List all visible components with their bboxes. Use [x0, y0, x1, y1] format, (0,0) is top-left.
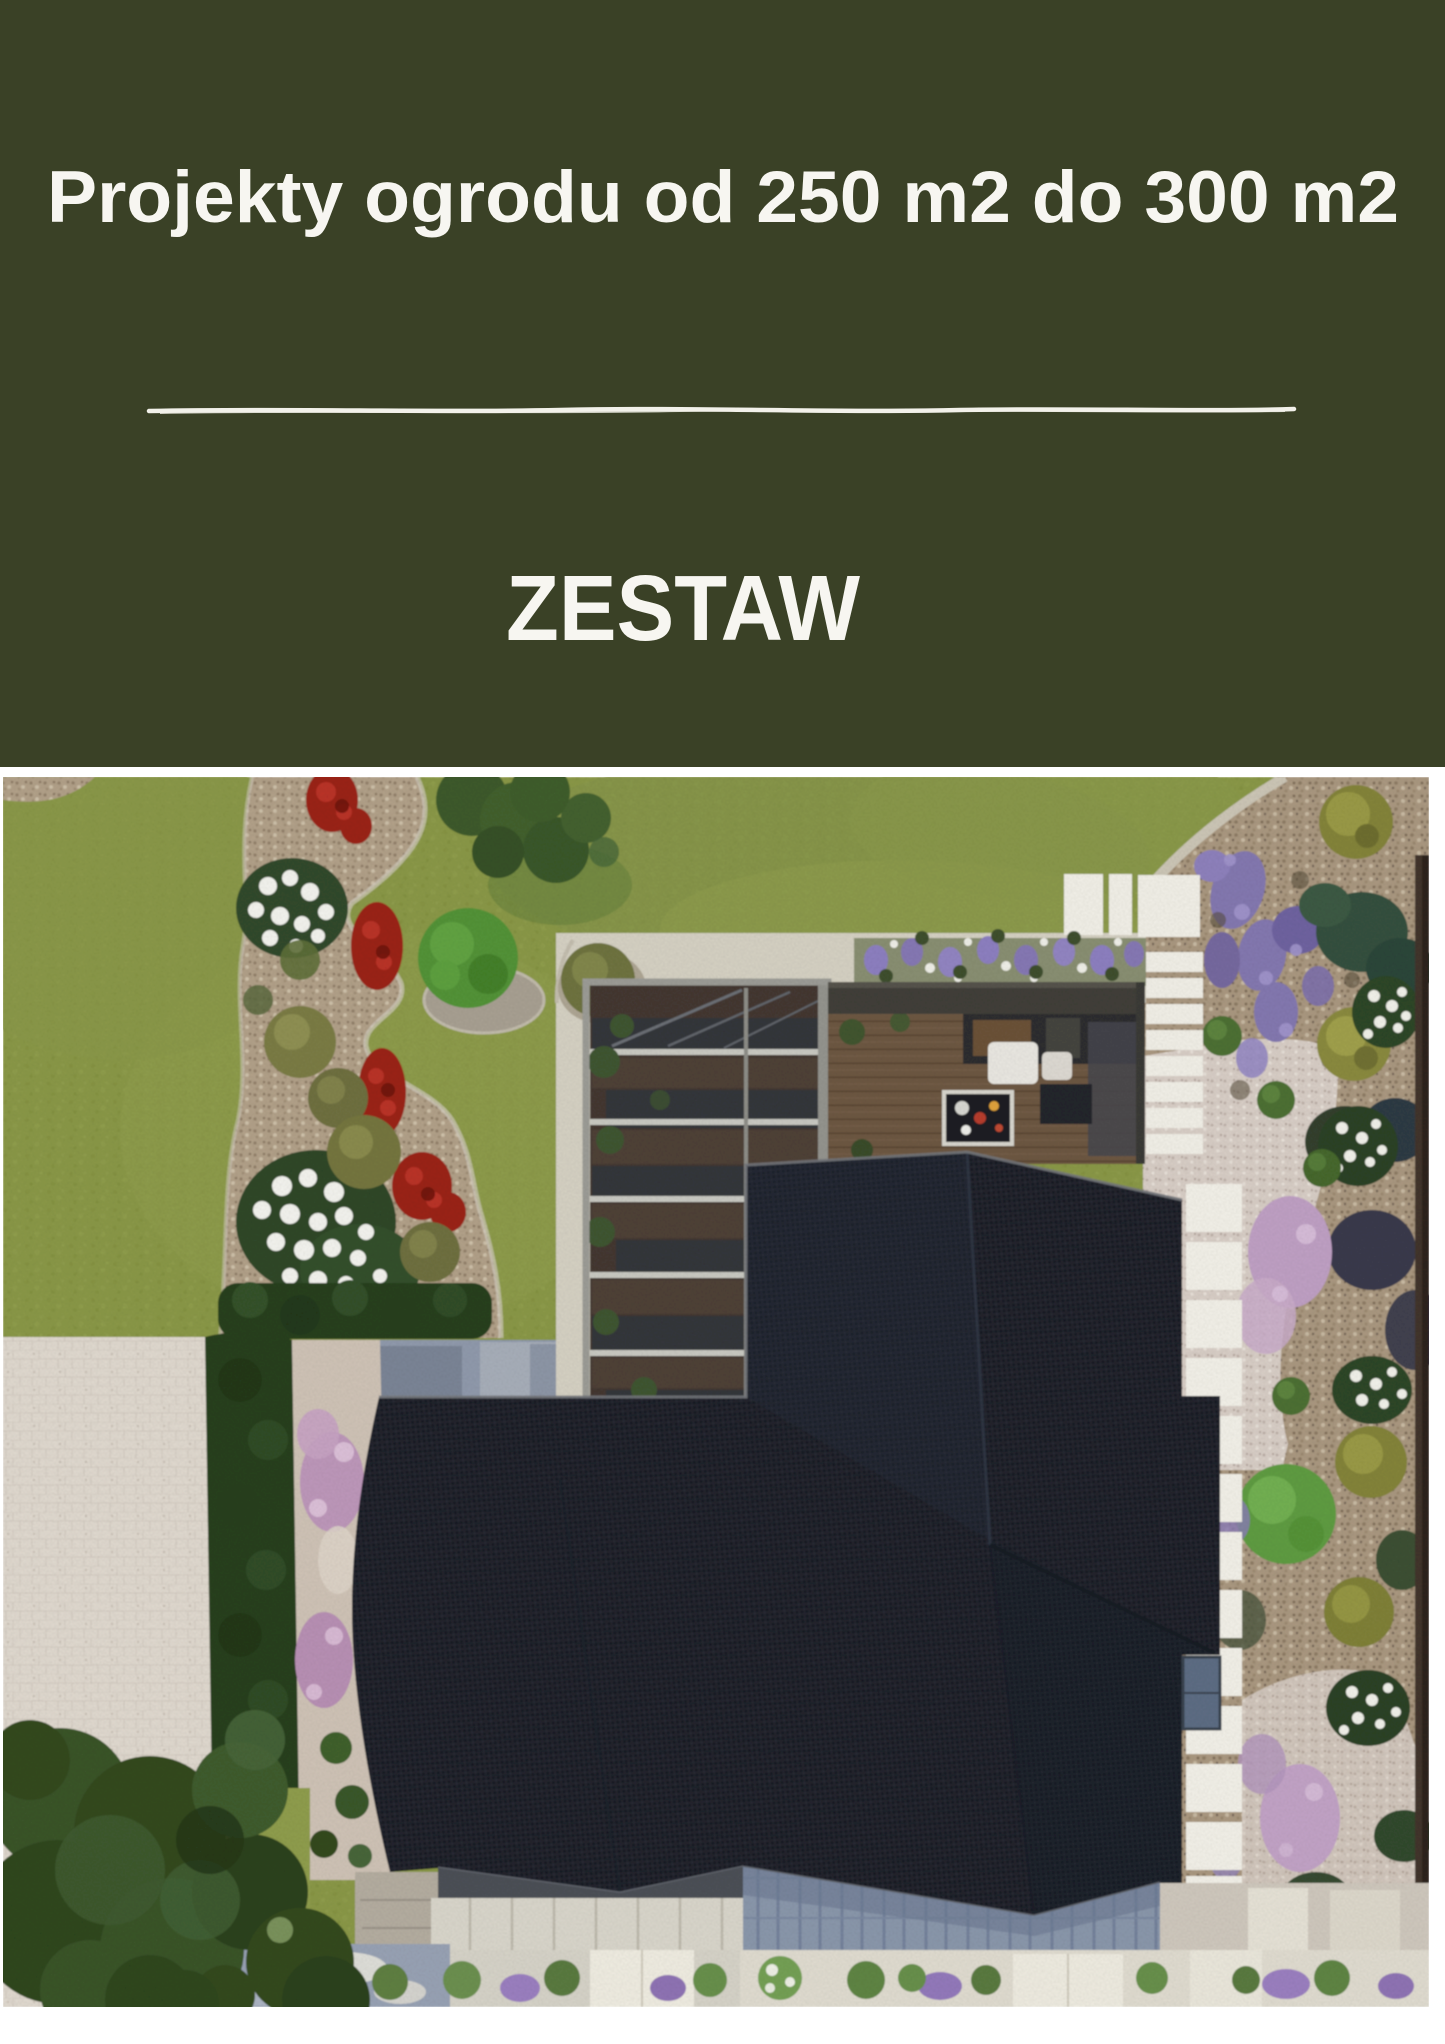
svg-text:Projekty ogrodu od 250 m2 do 3: Projekty ogrodu od 250 m2 do 300 m2: [47, 157, 1399, 238]
svg-text:ZESTAW: ZESTAW: [506, 556, 860, 660]
